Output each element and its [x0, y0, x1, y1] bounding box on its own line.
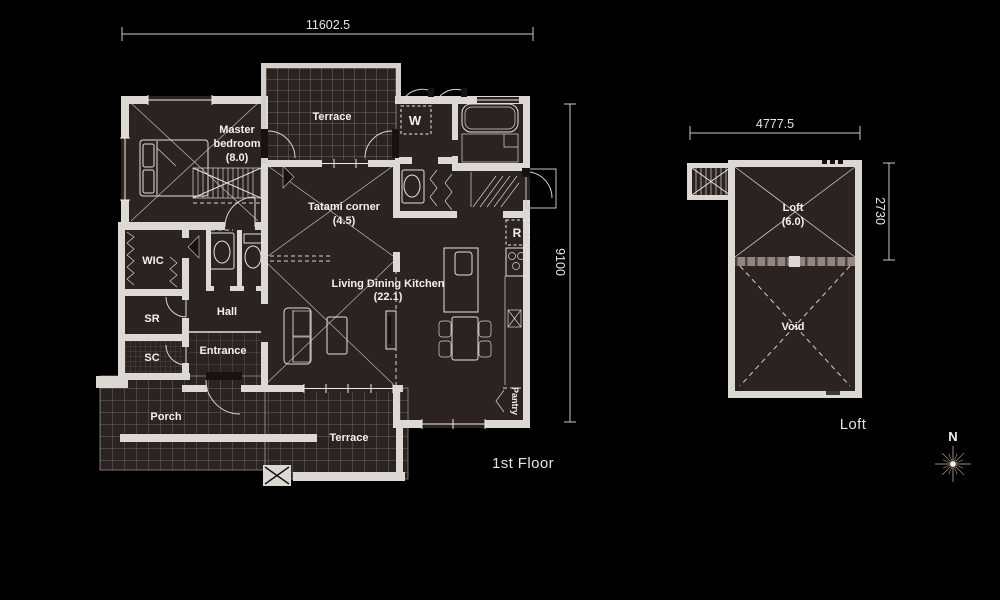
- label-fridge: R: [513, 226, 522, 240]
- label-master-1: Master: [219, 124, 255, 136]
- compass-north-label: N: [948, 429, 957, 444]
- floor-plan-page: Master bedroom (8.0) Terrace W Tatami co…: [0, 0, 1000, 600]
- label-ldk: Living Dining Kitchen: [331, 278, 444, 290]
- loft-railing: [735, 256, 855, 267]
- label-terrace-top: Terrace: [313, 111, 352, 123]
- caption-loft: Loft: [840, 416, 867, 433]
- loft-floor: [735, 167, 855, 391]
- dim-height-first-floor: 9100: [553, 248, 567, 276]
- label-master-2: bedroom: [213, 138, 260, 150]
- label-loft: Loft: [783, 202, 804, 214]
- porch-step: [120, 434, 317, 442]
- label-sc: SC: [144, 352, 159, 364]
- label-washer: W: [409, 113, 422, 128]
- label-tatami: Tatami corner: [308, 201, 381, 213]
- label-ldk-size: (22.1): [374, 291, 403, 303]
- caption-first-floor: 1st Floor: [492, 455, 554, 472]
- dim-width-first-floor: 11602.5: [306, 18, 350, 32]
- dim-height-loft: 2730: [873, 197, 887, 225]
- label-tatami-size: (4.5): [333, 215, 356, 227]
- label-master-size: (8.0): [226, 152, 249, 164]
- label-porch: Porch: [150, 411, 181, 423]
- compass-center-dot: [950, 461, 956, 467]
- dim-width-loft: 4777.5: [756, 117, 794, 131]
- label-void: Void: [781, 321, 804, 333]
- floor-plan-drawing: Master bedroom (8.0) Terrace W Tatami co…: [0, 0, 1000, 600]
- label-wic: WIC: [142, 255, 163, 267]
- label-pantry: Pantry: [510, 387, 520, 415]
- label-hall: Hall: [217, 306, 237, 318]
- label-loft-size: (6.0): [782, 216, 805, 228]
- terrace-step: [293, 472, 405, 481]
- label-terrace-bottom: Terrace: [330, 432, 369, 444]
- label-entrance: Entrance: [199, 345, 246, 357]
- label-sr: SR: [144, 313, 159, 325]
